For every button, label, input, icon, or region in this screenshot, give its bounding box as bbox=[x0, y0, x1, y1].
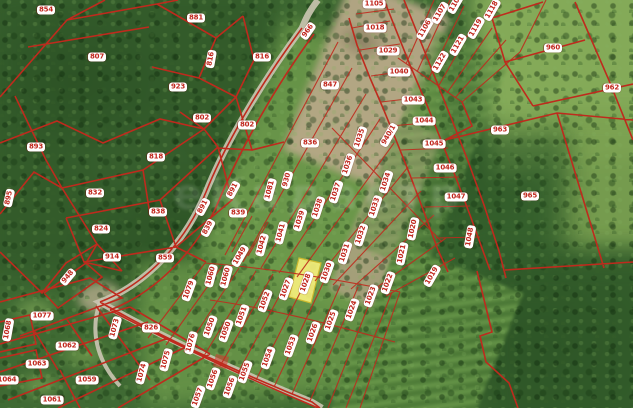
parcel-label-1060[interactable]: 1060 bbox=[204, 264, 219, 288]
parcel-label-1079[interactable]: 1079 bbox=[181, 278, 197, 302]
parcel-label-1056[interactable]: 1056 bbox=[205, 367, 221, 391]
parcel-label-1047[interactable]: 1047 bbox=[445, 193, 468, 202]
parcel-label-1033[interactable]: 1033 bbox=[367, 195, 383, 219]
parcel-label-1057[interactable]: 1057 bbox=[190, 385, 206, 408]
parcel-label-1027[interactable]: 1027 bbox=[278, 277, 294, 301]
parcel-label-807[interactable]: 807 bbox=[88, 53, 106, 62]
parcel-label-1045[interactable]: 1045 bbox=[423, 140, 446, 149]
parcel-label-1019[interactable]: 1019 bbox=[422, 264, 441, 288]
parcel-label-1055[interactable]: 1055 bbox=[237, 360, 253, 384]
parcel-label-802[interactable]: 802 bbox=[193, 114, 211, 123]
parcel-label-1076[interactable]: 1076 bbox=[184, 331, 199, 355]
parcel-label-1024[interactable]: 1024 bbox=[344, 298, 360, 322]
parcel-label-802[interactable]: 802 bbox=[238, 121, 256, 130]
parcel-label-1051[interactable]: 1051 bbox=[234, 304, 250, 328]
parcel-label-1050[interactable]: 1050 bbox=[218, 319, 234, 343]
parcel-label-1081[interactable]: 1081 bbox=[263, 178, 278, 202]
parcel-label-895[interactable]: 895 bbox=[3, 188, 16, 207]
parcel-label-839[interactable]: 839 bbox=[229, 209, 247, 218]
parcel-label-1025[interactable]: 1025 bbox=[323, 309, 339, 333]
parcel-label-816[interactable]: 816 bbox=[205, 49, 217, 68]
parcel-labels: 8548819661105101811061107110811181119112… bbox=[0, 0, 633, 408]
parcel-label-1031[interactable]: 1031 bbox=[337, 241, 353, 265]
parcel-label-965[interactable]: 965 bbox=[521, 192, 539, 201]
parcel-label-948[interactable]: 948 bbox=[59, 267, 77, 287]
parcel-label-891[interactable]: 891 bbox=[195, 197, 211, 217]
parcel-label-1041[interactable]: 1041 bbox=[274, 221, 289, 245]
parcel-label-1023[interactable]: 1023 bbox=[363, 284, 379, 308]
parcel-label-854[interactable]: 854 bbox=[37, 6, 55, 15]
parcel-label-1038[interactable]: 1038 bbox=[310, 196, 326, 220]
parcel-label-914[interactable]: 914 bbox=[103, 253, 121, 262]
parcel-label-1018[interactable]: 1018 bbox=[364, 24, 387, 33]
cadastral-map[interactable]: еКадастр 8548819661105101811061107110811… bbox=[0, 0, 633, 408]
parcel-label-1061[interactable]: 1061 bbox=[41, 396, 64, 405]
parcel-label-1043[interactable]: 1043 bbox=[402, 96, 425, 105]
parcel-label-1056[interactable]: 1056 bbox=[222, 375, 238, 399]
parcel-label-1042[interactable]: 1042 bbox=[255, 233, 270, 257]
parcel-label-963[interactable]: 963 bbox=[491, 126, 509, 135]
parcel-label-1060[interactable]: 1060 bbox=[219, 265, 234, 289]
parcel-label-960[interactable]: 960 bbox=[544, 44, 562, 53]
parcel-label-966[interactable]: 966 bbox=[299, 21, 317, 41]
parcel-label-1029[interactable]: 1029 bbox=[377, 47, 400, 56]
parcel-label-832[interactable]: 832 bbox=[86, 189, 104, 198]
parcel-label-847[interactable]: 847 bbox=[321, 81, 339, 90]
parcel-label-1059[interactable]: 1059 bbox=[76, 376, 99, 385]
parcel-label-1026[interactable]: 1026 bbox=[305, 321, 321, 345]
parcel-label-859[interactable]: 859 bbox=[156, 254, 174, 263]
parcel-label-1068[interactable]: 1068 bbox=[2, 318, 15, 342]
parcel-label-1028[interactable]: 1028 bbox=[298, 271, 314, 295]
parcel-label-1040[interactable]: 1040 bbox=[388, 68, 411, 77]
parcel-label-1046[interactable]: 1046 bbox=[434, 164, 457, 173]
parcel-label-818[interactable]: 818 bbox=[147, 153, 165, 162]
parcel-label-838[interactable]: 838 bbox=[149, 208, 167, 217]
parcel-label-1075[interactable]: 1075 bbox=[159, 348, 174, 372]
parcel-label-1074[interactable]: 1074 bbox=[135, 361, 150, 385]
parcel-label-1073[interactable]: 1073 bbox=[108, 316, 123, 340]
parcel-label-1118[interactable]: 1118 bbox=[482, 0, 501, 22]
parcel-label-826[interactable]: 826 bbox=[142, 324, 160, 333]
parcel-label-1119[interactable]: 1119 bbox=[466, 16, 485, 40]
parcel-label-839[interactable]: 839 bbox=[200, 218, 216, 238]
parcel-label-1044[interactable]: 1044 bbox=[413, 117, 436, 126]
parcel-label-1107[interactable]: 1107 bbox=[430, 1, 449, 25]
parcel-label-1048[interactable]: 1048 bbox=[464, 225, 477, 249]
parcel-label-1077[interactable]: 1077 bbox=[31, 312, 54, 321]
parcel-label-1030[interactable]: 1030 bbox=[319, 260, 335, 284]
parcel-label-1105[interactable]: 1105 bbox=[363, 0, 386, 9]
parcel-label-1037[interactable]: 1037 bbox=[328, 180, 344, 204]
parcel-label-1062[interactable]: 1062 bbox=[56, 342, 79, 351]
parcel-label-940-1[interactable]: 940/1 bbox=[379, 122, 399, 148]
parcel-label-1036[interactable]: 1036 bbox=[340, 153, 356, 177]
parcel-label-893[interactable]: 893 bbox=[27, 143, 45, 152]
parcel-label-1122[interactable]: 1122 bbox=[430, 50, 449, 74]
parcel-label-1108[interactable]: 1108 bbox=[446, 0, 465, 15]
parcel-label-1054[interactable]: 1054 bbox=[260, 346, 276, 370]
parcel-label-816[interactable]: 816 bbox=[253, 53, 271, 62]
parcel-label-891[interactable]: 891 bbox=[225, 180, 241, 200]
parcel-label-1020[interactable]: 1020 bbox=[406, 217, 420, 241]
parcel-label-1035[interactable]: 1035 bbox=[352, 126, 368, 150]
parcel-label-1032[interactable]: 1032 bbox=[353, 223, 369, 247]
parcel-label-1052[interactable]: 1052 bbox=[257, 289, 273, 313]
parcel-label-962[interactable]: 962 bbox=[603, 84, 621, 93]
parcel-label-1039[interactable]: 1039 bbox=[292, 208, 308, 232]
parcel-label-930[interactable]: 930 bbox=[280, 170, 293, 190]
parcel-label-1121[interactable]: 1121 bbox=[448, 33, 467, 57]
parcel-label-1022[interactable]: 1022 bbox=[380, 271, 396, 295]
parcel-label-1034[interactable]: 1034 bbox=[378, 170, 394, 194]
parcel-label-1049[interactable]: 1049 bbox=[230, 244, 249, 268]
parcel-label-836[interactable]: 836 bbox=[301, 139, 319, 148]
parcel-label-1050[interactable]: 1050 bbox=[202, 315, 218, 339]
parcel-label-1064[interactable]: 1064 bbox=[0, 376, 18, 385]
parcel-label-923[interactable]: 923 bbox=[169, 83, 187, 92]
parcel-label-1063[interactable]: 1063 bbox=[26, 360, 49, 369]
parcel-label-881[interactable]: 881 bbox=[187, 14, 205, 23]
parcel-label-1053[interactable]: 1053 bbox=[283, 334, 299, 358]
parcel-label-1021[interactable]: 1021 bbox=[395, 242, 409, 266]
parcel-label-824[interactable]: 824 bbox=[92, 225, 110, 234]
